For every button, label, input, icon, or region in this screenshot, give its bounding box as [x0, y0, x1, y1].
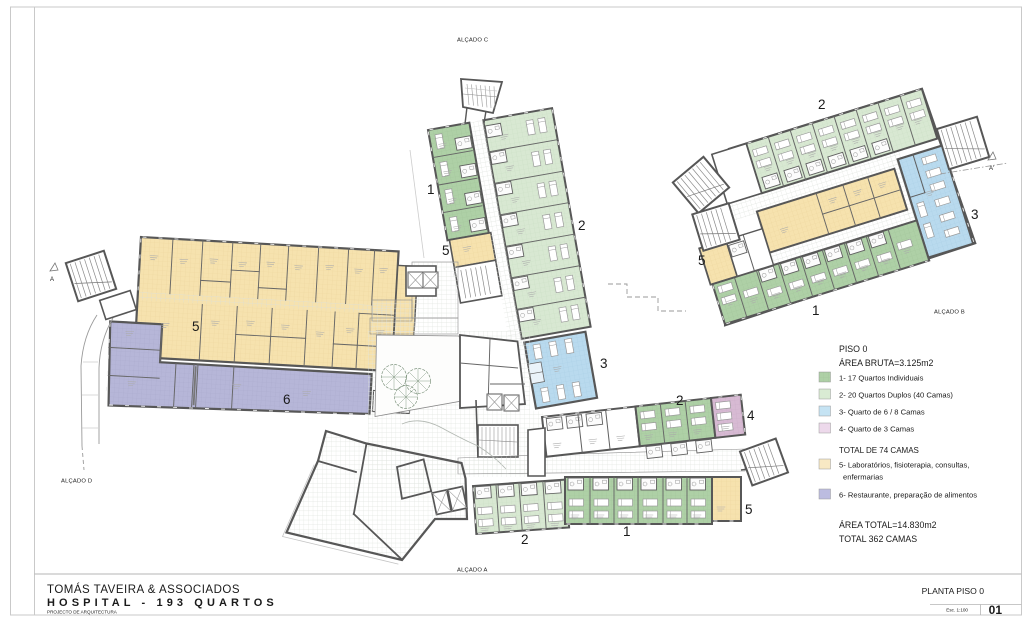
svg-text:A': A' [989, 166, 994, 172]
svg-text:TOTAL 362 CAMAS: TOTAL 362 CAMAS [839, 534, 917, 544]
svg-text:PLANTA PISO 0: PLANTA PISO 0 [922, 586, 985, 596]
svg-text:3: 3 [971, 207, 979, 222]
svg-text:5: 5 [442, 243, 450, 258]
svg-text:5: 5 [192, 319, 200, 334]
svg-text:1- 17 Quartos Individuais: 1- 17 Quartos Individuais [839, 374, 924, 383]
svg-text:ALÇADO A: ALÇADO A [457, 568, 488, 574]
svg-text:2: 2 [818, 97, 826, 112]
svg-text:ALÇADO B: ALÇADO B [934, 310, 965, 316]
svg-text:HOSPITAL - 193 QUARTOS: HOSPITAL - 193 QUARTOS [47, 597, 278, 609]
svg-text:TOMÁS TAVEIRA & ASSOCIADOS: TOMÁS TAVEIRA & ASSOCIADOS [47, 583, 240, 596]
svg-text:A: A [50, 277, 54, 283]
svg-text:5- Laboratórios, fisioterapia,: 5- Laboratórios, fisioterapia, consultas… [839, 461, 969, 470]
svg-text:5: 5 [698, 253, 706, 268]
svg-text:1: 1 [812, 303, 820, 318]
svg-text:Esc. 1:100: Esc. 1:100 [946, 608, 968, 613]
svg-text:2- 20 Quartos Duplos (40 Camas: 2- 20 Quartos Duplos (40 Camas) [839, 391, 953, 400]
svg-text:3: 3 [600, 356, 608, 371]
svg-text:ÁREA TOTAL=14.830m2: ÁREA TOTAL=14.830m2 [839, 520, 937, 530]
svg-text:4: 4 [747, 408, 755, 423]
svg-text:ALÇADO C: ALÇADO C [457, 38, 488, 44]
svg-text:1: 1 [623, 524, 631, 539]
svg-text:3- Quarto de 6 / 8 Camas: 3- Quarto de 6 / 8 Camas [839, 408, 925, 417]
svg-text:PROJECTO DE ARQUITECTURA: PROJECTO DE ARQUITECTURA [47, 610, 118, 615]
svg-text:01: 01 [989, 603, 1003, 617]
svg-text:6- Restaurante, preparação de: 6- Restaurante, preparação de alimentos [839, 491, 977, 500]
svg-text:PISO 0: PISO 0 [839, 344, 867, 354]
svg-text:ALÇADO D: ALÇADO D [61, 479, 92, 485]
svg-text:5: 5 [745, 502, 753, 517]
svg-text:2: 2 [578, 218, 586, 233]
svg-text:4- Quarto de 3 Camas: 4- Quarto de 3 Camas [839, 425, 914, 434]
svg-text:ÁREA BRUTA=3.125m2: ÁREA BRUTA=3.125m2 [839, 358, 934, 368]
svg-text:TOTAL DE 74 CAMAS: TOTAL DE 74 CAMAS [839, 446, 919, 455]
svg-text:2: 2 [676, 393, 684, 408]
svg-text:6: 6 [283, 392, 291, 407]
svg-text:2: 2 [521, 532, 529, 547]
svg-text:enfermarias: enfermarias [843, 473, 883, 482]
svg-text:1: 1 [427, 182, 435, 197]
